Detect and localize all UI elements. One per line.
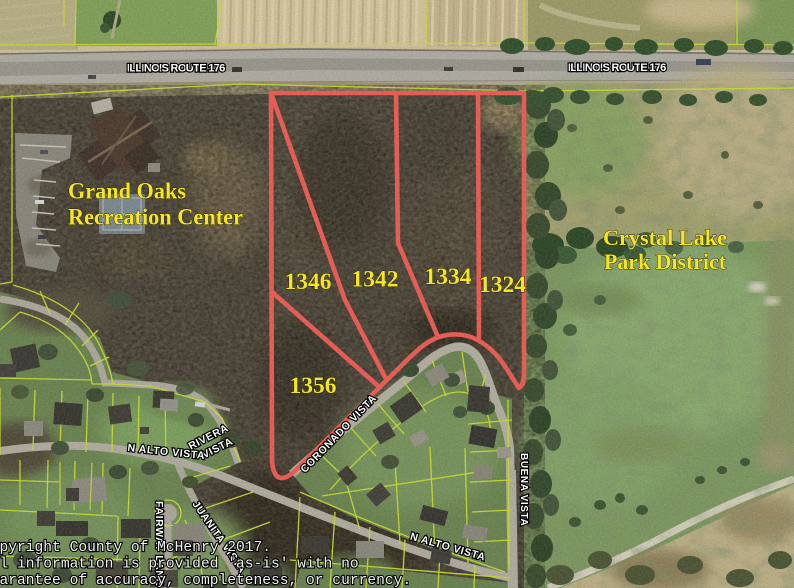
svg-text:Grand Oaks: Grand Oaks (68, 179, 186, 204)
svg-text:1324: 1324 (479, 272, 526, 298)
svg-text:1356: 1356 (290, 373, 337, 399)
svg-text:Copyright County of McHenry 20: Copyright County of McHenry 2017. (0, 540, 271, 556)
svg-text:1334: 1334 (425, 264, 472, 290)
svg-text:ILLINOIS ROUTE 176: ILLINOIS ROUTE 176 (127, 63, 226, 75)
svg-text:Crystal Lake: Crystal Lake (603, 225, 727, 250)
svg-text:1342: 1342 (352, 267, 399, 293)
svg-text:BUENA VISTA: BUENA VISTA (518, 453, 529, 526)
svg-text:Recreation Center: Recreation Center (68, 205, 243, 230)
svg-text:All information is provided 'a: All information is provided 'as-is' with… (0, 557, 359, 573)
svg-text:ILLINOIS ROUTE 176: ILLINOIS ROUTE 176 (568, 62, 667, 74)
svg-text:guarantee of accuracy, complet: guarantee of accuracy, completeness, or … (0, 573, 411, 588)
svg-text:Park District: Park District (604, 249, 727, 274)
svg-text:1346: 1346 (285, 269, 332, 295)
